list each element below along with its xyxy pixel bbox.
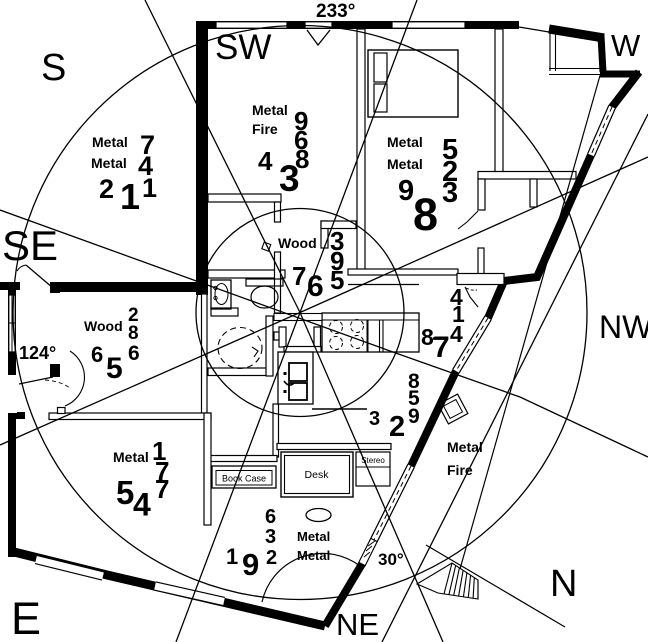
svg-text:30°: 30°: [378, 550, 404, 569]
svg-text:5: 5: [106, 352, 123, 385]
svg-text:2: 2: [99, 174, 114, 204]
svg-text:1: 1: [120, 176, 140, 217]
svg-text:2: 2: [266, 547, 277, 569]
svg-text:8: 8: [128, 323, 139, 344]
svg-text:1: 1: [226, 544, 238, 569]
svg-text:2: 2: [389, 411, 405, 443]
svg-text:Wood: Wood: [84, 318, 123, 334]
svg-text:Fire: Fire: [447, 462, 473, 478]
svg-text:5: 5: [330, 265, 344, 295]
svg-text:Fire: Fire: [252, 121, 278, 137]
svg-text:9: 9: [408, 405, 420, 428]
svg-text:NE: NE: [336, 607, 379, 642]
svg-text:4: 4: [133, 487, 151, 523]
svg-text:E: E: [11, 593, 41, 642]
svg-text:Metal: Metal: [297, 548, 330, 563]
svg-text:S: S: [41, 47, 66, 89]
svg-text:4: 4: [258, 146, 273, 176]
svg-text:Metal: Metal: [91, 155, 127, 171]
svg-text:7: 7: [292, 261, 306, 291]
svg-text:3: 3: [369, 408, 380, 430]
svg-text:5: 5: [116, 474, 134, 511]
svg-text:7: 7: [155, 474, 169, 504]
svg-text:Metal: Metal: [113, 449, 149, 465]
svg-text:233°: 233°: [316, 1, 355, 22]
svg-text:W: W: [611, 28, 641, 63]
svg-text:SW: SW: [215, 28, 271, 67]
svg-text:Stereo: Stereo: [361, 456, 385, 465]
svg-text:3: 3: [442, 177, 458, 209]
svg-text:Metal: Metal: [387, 156, 423, 172]
svg-text:3: 3: [279, 158, 300, 199]
svg-text:Book Case: Book Case: [222, 474, 266, 484]
svg-text:6: 6: [307, 270, 324, 303]
svg-text:Metal: Metal: [92, 134, 128, 150]
svg-text:Metal: Metal: [447, 439, 483, 455]
svg-text:3: 3: [265, 526, 276, 548]
svg-text:Metal: Metal: [387, 134, 423, 150]
svg-text:Desk: Desk: [305, 469, 330, 481]
svg-text:4: 4: [450, 321, 463, 347]
svg-text:9: 9: [398, 175, 414, 207]
svg-text:Wood: Wood: [278, 235, 317, 251]
svg-text:SE: SE: [2, 222, 58, 269]
svg-text:6: 6: [91, 342, 103, 367]
svg-text:NW: NW: [599, 309, 648, 345]
svg-text:7: 7: [433, 331, 450, 364]
svg-text:Metal: Metal: [252, 102, 288, 118]
svg-text:1: 1: [142, 173, 157, 203]
svg-text:6: 6: [265, 506, 276, 528]
svg-text:N: N: [550, 563, 577, 605]
svg-text:6: 6: [128, 342, 140, 365]
svg-text:8: 8: [413, 189, 438, 240]
svg-text:Metal: Metal: [297, 529, 330, 544]
svg-text:124°: 124°: [19, 343, 56, 363]
svg-text:9: 9: [242, 547, 259, 582]
